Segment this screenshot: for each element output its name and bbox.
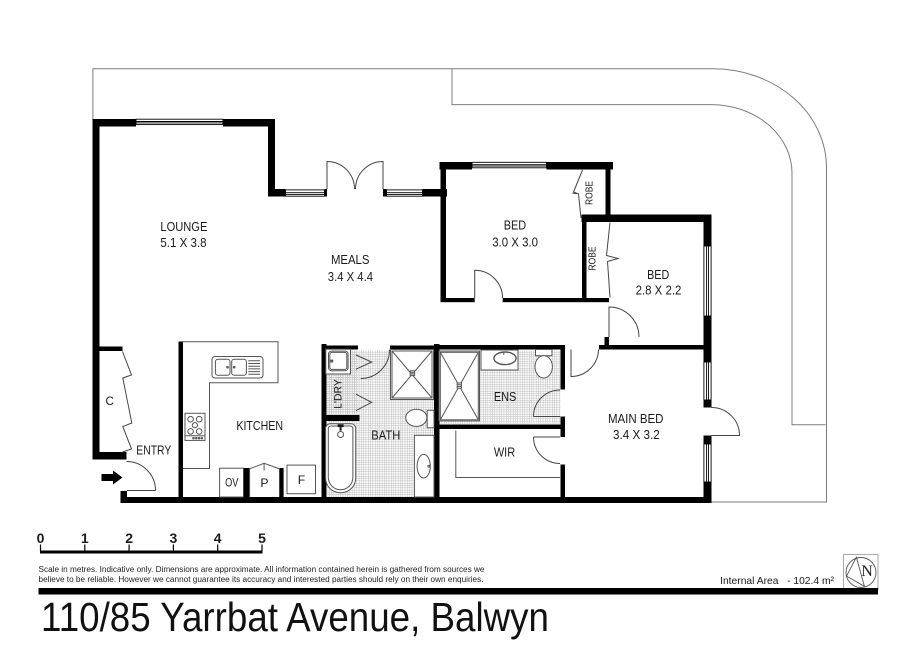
svg-text:ROBE: ROBE: [584, 181, 596, 205]
svg-text:MEALS: MEALS: [331, 252, 370, 267]
svg-text:110/85 Yarrbat Avenue, Balwyn: 110/85 Yarrbat Avenue, Balwyn: [41, 594, 549, 640]
svg-text:1: 1: [81, 530, 89, 546]
svg-text:3: 3: [170, 530, 178, 546]
svg-text:C: C: [105, 395, 113, 408]
svg-text:OV: OV: [225, 476, 239, 490]
svg-text:Internal Area - 102.4 m²: Internal Area - 102.4 m²: [720, 576, 834, 587]
svg-text:3.4 X 4.4: 3.4 X 4.4: [328, 269, 373, 284]
svg-text:0: 0: [37, 530, 45, 546]
svg-text:3.0 X 3.0: 3.0 X 3.0: [492, 235, 538, 250]
svg-text:L'DRY: L'DRY: [333, 379, 345, 409]
svg-text:2: 2: [125, 530, 133, 546]
svg-text:F: F: [298, 473, 306, 487]
svg-text:P: P: [260, 476, 268, 490]
svg-text:N: N: [861, 563, 873, 580]
svg-text:KITCHEN: KITCHEN: [236, 418, 283, 433]
svg-text:believe to be reliable. Howeve: believe to be reliable. However we canno…: [39, 575, 484, 584]
svg-text:5: 5: [258, 530, 266, 546]
svg-text:LOUNGE: LOUNGE: [160, 219, 207, 234]
svg-text:MAIN BED: MAIN BED: [608, 411, 664, 426]
svg-text:4: 4: [214, 530, 222, 546]
svg-text:5.1 X 3.8: 5.1 X 3.8: [160, 235, 206, 250]
svg-text:ENTRY: ENTRY: [136, 443, 171, 458]
svg-text:ENS: ENS: [494, 389, 517, 404]
svg-text:2.8 X 2.2: 2.8 X 2.2: [636, 282, 682, 297]
svg-text:Scale in metres. Indicative on: Scale in metres. Indicative only. Dimens…: [39, 565, 486, 574]
svg-text:BED: BED: [504, 218, 526, 233]
svg-text:BED: BED: [647, 267, 669, 282]
svg-text:3.4 X 3.2: 3.4 X 3.2: [613, 427, 660, 442]
svg-text:BATH: BATH: [371, 428, 400, 443]
svg-text:WIR: WIR: [494, 444, 515, 459]
svg-text:ROBE: ROBE: [587, 247, 599, 271]
